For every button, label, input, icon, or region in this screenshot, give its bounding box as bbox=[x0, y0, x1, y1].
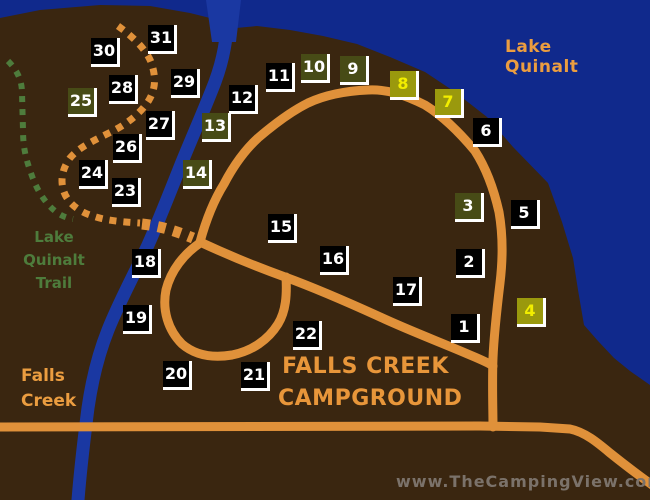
site-marker-11: 11 bbox=[266, 63, 295, 92]
site-marker-27: 27 bbox=[146, 111, 175, 140]
site-marker-10: 10 bbox=[301, 54, 330, 83]
site-marker-22: 22 bbox=[293, 321, 322, 350]
site-marker-4: 4 bbox=[517, 298, 546, 327]
site-marker-25: 25 bbox=[68, 88, 97, 117]
site-marker-24: 24 bbox=[79, 160, 108, 189]
site-marker-17: 17 bbox=[393, 277, 422, 306]
site-marker-23: 23 bbox=[112, 178, 141, 207]
site-marker-31: 31 bbox=[148, 25, 177, 54]
site-marker-28: 28 bbox=[109, 75, 138, 104]
site-marker-18: 18 bbox=[132, 249, 161, 278]
site-marker-12: 12 bbox=[229, 85, 258, 114]
site-marker-20: 20 bbox=[163, 361, 192, 390]
site-marker-13: 13 bbox=[202, 113, 231, 142]
site-marker-29: 29 bbox=[171, 69, 200, 98]
site-marker-3: 3 bbox=[455, 193, 484, 222]
site-marker-6: 6 bbox=[473, 118, 502, 147]
site-marker-9: 9 bbox=[340, 56, 369, 85]
site-marker-30: 30 bbox=[91, 38, 120, 67]
site-marker-1: 1 bbox=[451, 314, 480, 343]
site-marker-21: 21 bbox=[241, 362, 270, 391]
site-marker-15: 15 bbox=[268, 214, 297, 243]
site-marker-2: 2 bbox=[456, 249, 485, 278]
site-marker-14: 14 bbox=[183, 160, 212, 189]
site-marker-16: 16 bbox=[320, 246, 349, 275]
site-marker-8: 8 bbox=[390, 71, 419, 100]
site-marker-5: 5 bbox=[511, 200, 540, 229]
site-marker-26: 26 bbox=[113, 134, 142, 163]
site-marker-19: 19 bbox=[123, 305, 152, 334]
site-marker-7: 7 bbox=[435, 89, 464, 118]
campground-map: Lake Quinalt Lake Quinalt Trail Falls Cr… bbox=[0, 0, 650, 500]
